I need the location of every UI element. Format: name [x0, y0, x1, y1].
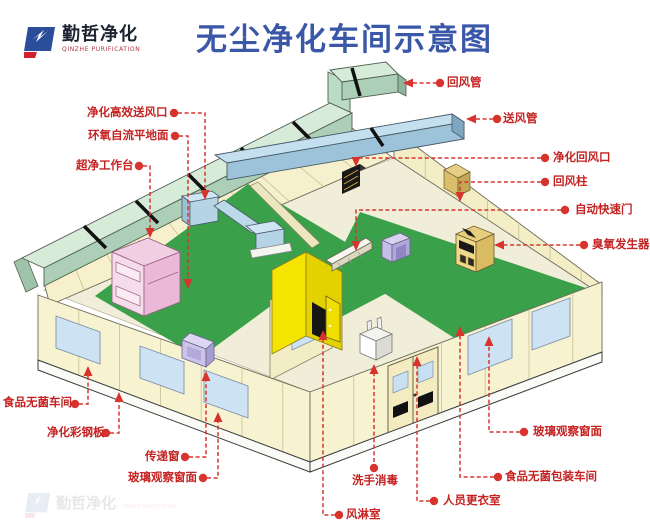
- callout-glass-window-right: 玻璃观察窗面: [533, 426, 602, 438]
- watermark-logo: 勤哲净化 QINZHE PURIFICATION: [25, 492, 177, 518]
- callout-hand-wash: 洗手消毒: [352, 475, 398, 487]
- callout-hepa-supply-outlet: 净化高效送风口: [87, 107, 168, 119]
- watermark-logo-icon: [25, 492, 51, 518]
- watermark-subtitle: QINZHE PURIFICATION: [121, 504, 177, 510]
- callout-steel-panel: 净化彩钢板: [47, 427, 105, 439]
- clean-bench: [112, 238, 180, 316]
- callout-supply-duct: 送风管: [503, 113, 538, 125]
- callout-changing-room: 人员更衣室: [443, 495, 501, 507]
- cleanroom-diagram: [0, 0, 650, 530]
- callout-packaging-workshop: 食品无菌包装车间: [505, 471, 597, 483]
- air-shower-door: [326, 296, 340, 342]
- callout-aseptic-workshop: 食品无菌车间: [3, 397, 72, 409]
- callout-return-column: 回风柱: [553, 176, 588, 188]
- callout-clean-bench: 超净工作台: [76, 160, 134, 172]
- callout-ozone-generator: 臭氧发生器: [592, 239, 650, 251]
- callout-return-duct: 回风管: [447, 77, 482, 89]
- callout-return-inlet: 净化回风口: [553, 152, 611, 164]
- ozone-cabinet: [456, 226, 494, 272]
- watermark-name: 勤哲净化: [56, 494, 116, 512]
- callout-pass-window: 传递窗: [145, 451, 180, 463]
- callout-auto-door: 自动快速门: [575, 204, 633, 216]
- callout-air-shower: 风淋室: [346, 509, 381, 521]
- callout-glass-window-left: 玻璃观察窗面: [128, 472, 197, 484]
- page: 勤哲净化 QINZHE PURIFICATION 无尘净化车间示意图: [0, 0, 650, 530]
- callout-epoxy-floor: 环氧自流平地面: [88, 130, 169, 142]
